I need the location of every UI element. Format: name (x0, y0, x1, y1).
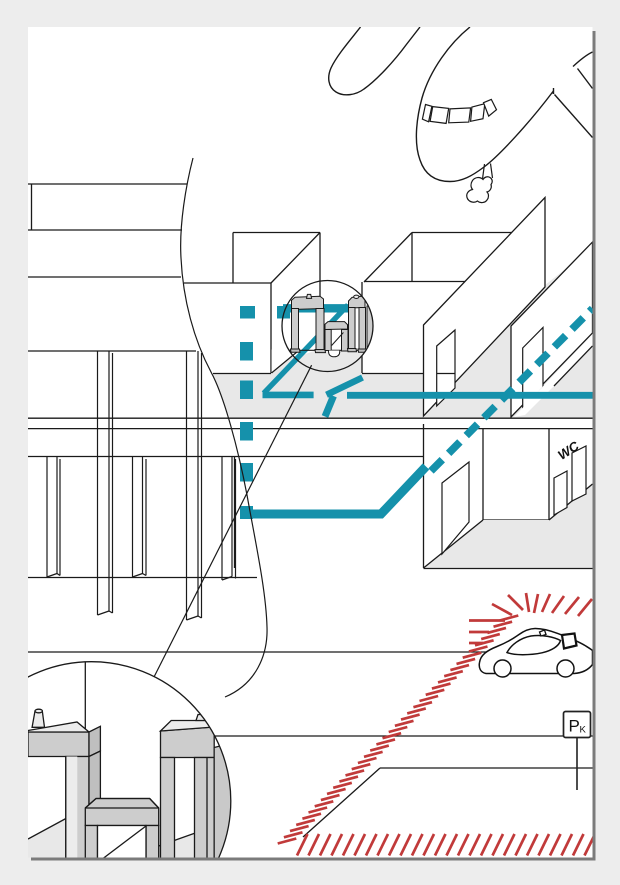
svg-text:P: P (569, 717, 580, 736)
svg-text:K: K (580, 725, 587, 736)
